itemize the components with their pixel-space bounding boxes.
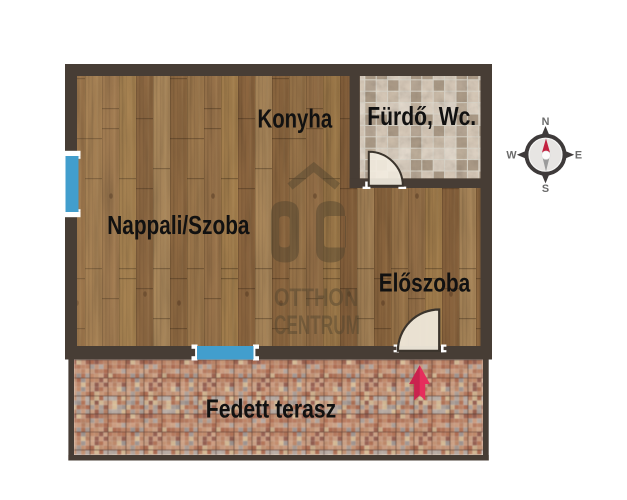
svg-text:W: W [506,149,517,161]
svg-text:CENTRUM: CENTRUM [274,310,360,340]
svg-text:Előszoba: Előszoba [379,268,471,297]
svg-text:Konyha: Konyha [258,104,334,133]
svg-text:N: N [542,116,550,128]
svg-text:Fürdő, Wc.: Fürdő, Wc. [367,103,476,132]
svg-text:S: S [542,183,549,195]
svg-text:OTTHON: OTTHON [274,284,358,312]
svg-text:Fedett terasz: Fedett terasz [206,396,336,425]
svg-text:Nappali/Szoba: Nappali/Szoba [107,211,250,240]
svg-text:E: E [575,149,582,161]
